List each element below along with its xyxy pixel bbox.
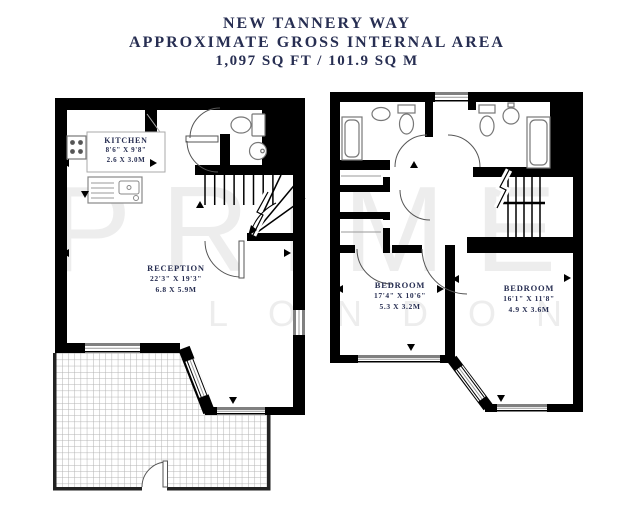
toilet-icon (479, 105, 495, 136)
window (358, 356, 440, 363)
room-name: KITCHEN (104, 136, 147, 146)
room-label-reception: RECEPTION 22'3" X 19'3" 6.8 X 5.9M (147, 263, 205, 295)
area-heading: APPROXIMATE GROSS INTERNAL AREA (0, 33, 634, 52)
bedroom1-door-arc (357, 249, 392, 284)
floorplan-drawing (0, 0, 634, 526)
room-dim-metric: 6.8 X 5.9M (147, 285, 205, 296)
stove-icon (67, 136, 86, 159)
window (457, 366, 484, 400)
bathtub-icon (527, 117, 550, 168)
room-label-bedroom-1: BEDROOM 17'4" X 10'6" 5.3 X 3.2M (374, 280, 426, 312)
window (435, 93, 470, 102)
window (85, 344, 140, 353)
basin-icon (250, 143, 267, 160)
first-floor-plan (330, 92, 583, 412)
hall-door-arc (400, 190, 430, 220)
room-dim-imperial: 22'3" X 19'3" (147, 274, 205, 285)
room-label-bedroom-2: BEDROOM 16'1" X 11'8" 4.9 X 3.6M (503, 283, 555, 315)
room-dim-metric: 2.6 X 3.0M (104, 156, 147, 166)
basin-icon (503, 103, 519, 124)
understairs-door (205, 241, 244, 278)
bathroom1-door-arc (395, 135, 427, 167)
title-block: NEW TANNERY WAY APPROXIMATE GROSS INTERN… (0, 14, 634, 71)
room-dim-imperial: 8'6" X 9'8" (104, 146, 147, 156)
floorplan-page: PRIME LONDON NEW TANNERY WAY APPROXIMATE… (0, 0, 634, 526)
property-name: NEW TANNERY WAY (0, 14, 634, 33)
toilet-icon (398, 105, 415, 134)
closet-shelf-lines (341, 176, 381, 232)
window (217, 408, 265, 415)
area-value: 1,097 SQ FT / 101.9 SQ M (0, 52, 634, 71)
room-dim-imperial: 17'4" X 10'6" (374, 291, 426, 302)
room-name: BEDROOM (374, 280, 426, 291)
bathtub-icon (342, 117, 362, 160)
window (497, 405, 547, 412)
basin-icon (372, 108, 390, 121)
staircase (503, 177, 545, 237)
bedroom2-door-arc (422, 249, 467, 294)
bathroom2-door-arc (448, 135, 480, 167)
room-name: RECEPTION (147, 263, 205, 274)
room-dim-metric: 5.3 X 3.2M (374, 302, 426, 313)
room-label-kitchen: KITCHEN 8'6" X 9'8" 2.6 X 3.0M (104, 136, 147, 165)
wc-door-arc (190, 108, 220, 138)
room-name: BEDROOM (503, 283, 555, 294)
room-dim-metric: 4.9 X 3.6M (503, 305, 555, 316)
sink-counter-icon (88, 177, 142, 203)
toilet-icon (231, 114, 265, 136)
room-dim-imperial: 16'1" X 11'8" (503, 294, 555, 305)
window (294, 310, 305, 335)
